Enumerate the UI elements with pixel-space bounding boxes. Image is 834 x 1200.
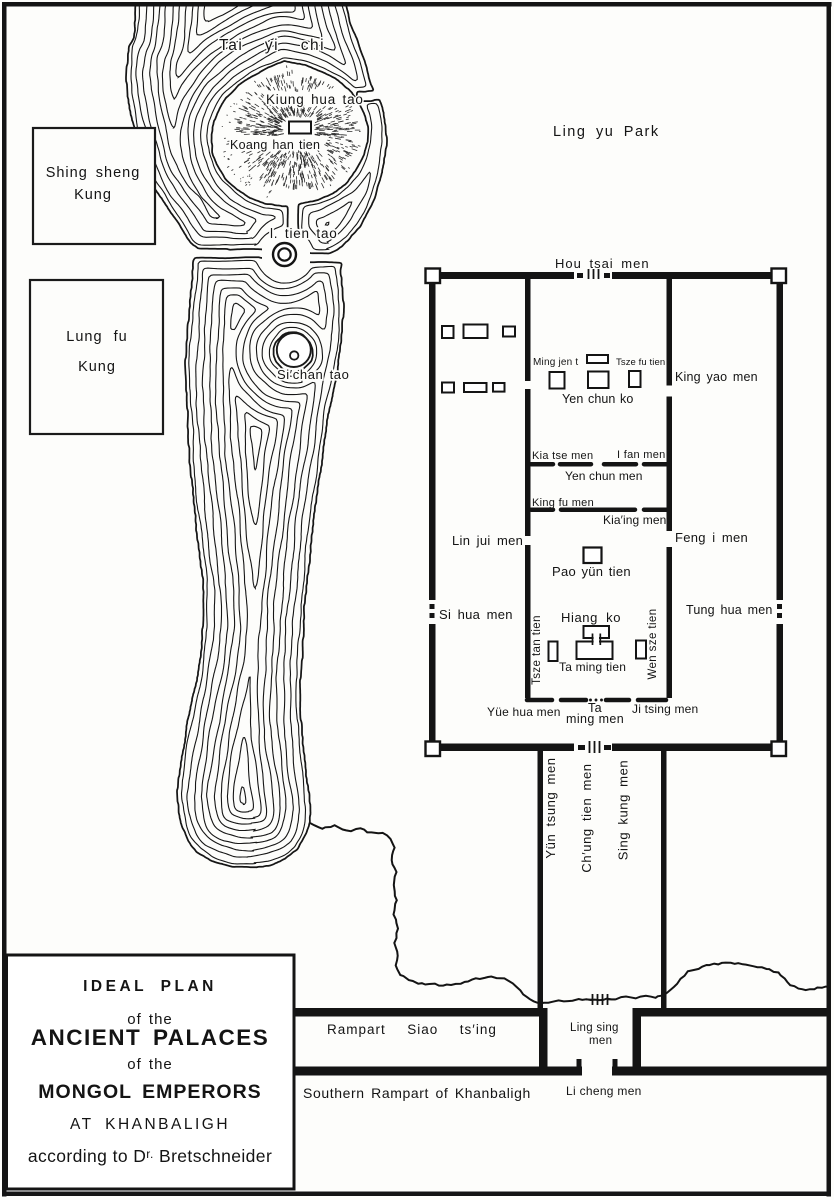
svg-text:I fan men: I fan men [617,449,666,461]
svg-text:ANCIENT PALACES: ANCIENT PALACES [31,1025,270,1050]
svg-text:Koang han tien: Koang han tien [230,138,320,152]
svg-text:Ta ming tien: Ta ming tien [559,660,626,674]
svg-text:IDEAL PLAN: IDEAL PLAN [83,978,217,995]
svg-text:l. tien tao: l. tien tao [270,226,338,241]
svg-text:Rampart Siao ts′ing: Rampart Siao ts′ing [327,1022,497,1037]
svg-text:Ch′ung tien men: Ch′ung tien men [579,763,594,872]
svg-text:Hiang ko: Hiang ko [561,610,621,625]
svg-text:Si hua men: Si hua men [439,607,513,622]
svg-text:Lung fu: Lung fu [66,329,127,345]
svg-text:Lin jui men: Lin jui men [452,533,523,548]
svg-text:Yen chun men: Yen chun men [565,469,642,483]
svg-text:Tsze fu tien: Tsze fu tien [616,357,665,368]
svg-text:Pao yün tien: Pao yün tien [552,564,631,579]
svg-text:ming men: ming men [566,712,624,726]
svg-text:AT KHANBALIGH: AT KHANBALIGH [70,1116,230,1133]
svg-text:Ling yu Park: Ling yu Park [553,124,660,140]
svg-text:Yün tsung men: Yün tsung men [543,757,558,858]
svg-text:Hou tsai men: Hou tsai men [555,256,650,271]
svg-text:Kia′ing men: Kia′ing men [603,513,666,527]
svg-text:King yao men: King yao men [675,370,758,384]
svg-text:Ji tsing men: Ji tsing men [632,702,698,716]
svg-text:Yen chun ko: Yen chun ko [562,392,633,406]
svg-text:King fu men: King fu men [532,497,594,509]
svg-text:Si′chan tao: Si′chan tao [277,367,349,382]
svg-text:Shing sheng: Shing sheng [46,165,141,181]
svg-text:Kung: Kung [78,359,116,375]
svg-text:men: men [589,1035,612,1047]
svg-text:Kung: Kung [74,187,112,203]
svg-text:Kia tse men: Kia tse men [532,450,593,462]
svg-text:Tai yi chi: Tai yi chi [219,37,325,54]
svg-text:Ming jen t: Ming jen t [533,357,578,368]
svg-text:Tsze tan tien: Tsze tan tien [531,615,543,685]
svg-text:Yüe hua men: Yüe hua men [487,705,561,719]
svg-text:Sing kung men: Sing kung men [616,760,631,861]
svg-text:Li cheng men: Li cheng men [566,1084,642,1098]
svg-text:Ling sing: Ling sing [570,1022,619,1034]
svg-text:MONGOL EMPERORS: MONGOL EMPERORS [38,1081,261,1103]
svg-text:Southern Rampart of Khanbaligh: Southern Rampart of Khanbaligh [303,1085,531,1101]
svg-text:Feng i men: Feng i men [675,530,748,545]
svg-text:Kiung hua tao: Kiung hua tao [266,92,364,107]
svg-text:of the: of the [127,1056,173,1073]
svg-text:Tung hua men: Tung hua men [686,603,773,617]
svg-text:Wen sze tien: Wen sze tien [647,608,659,679]
